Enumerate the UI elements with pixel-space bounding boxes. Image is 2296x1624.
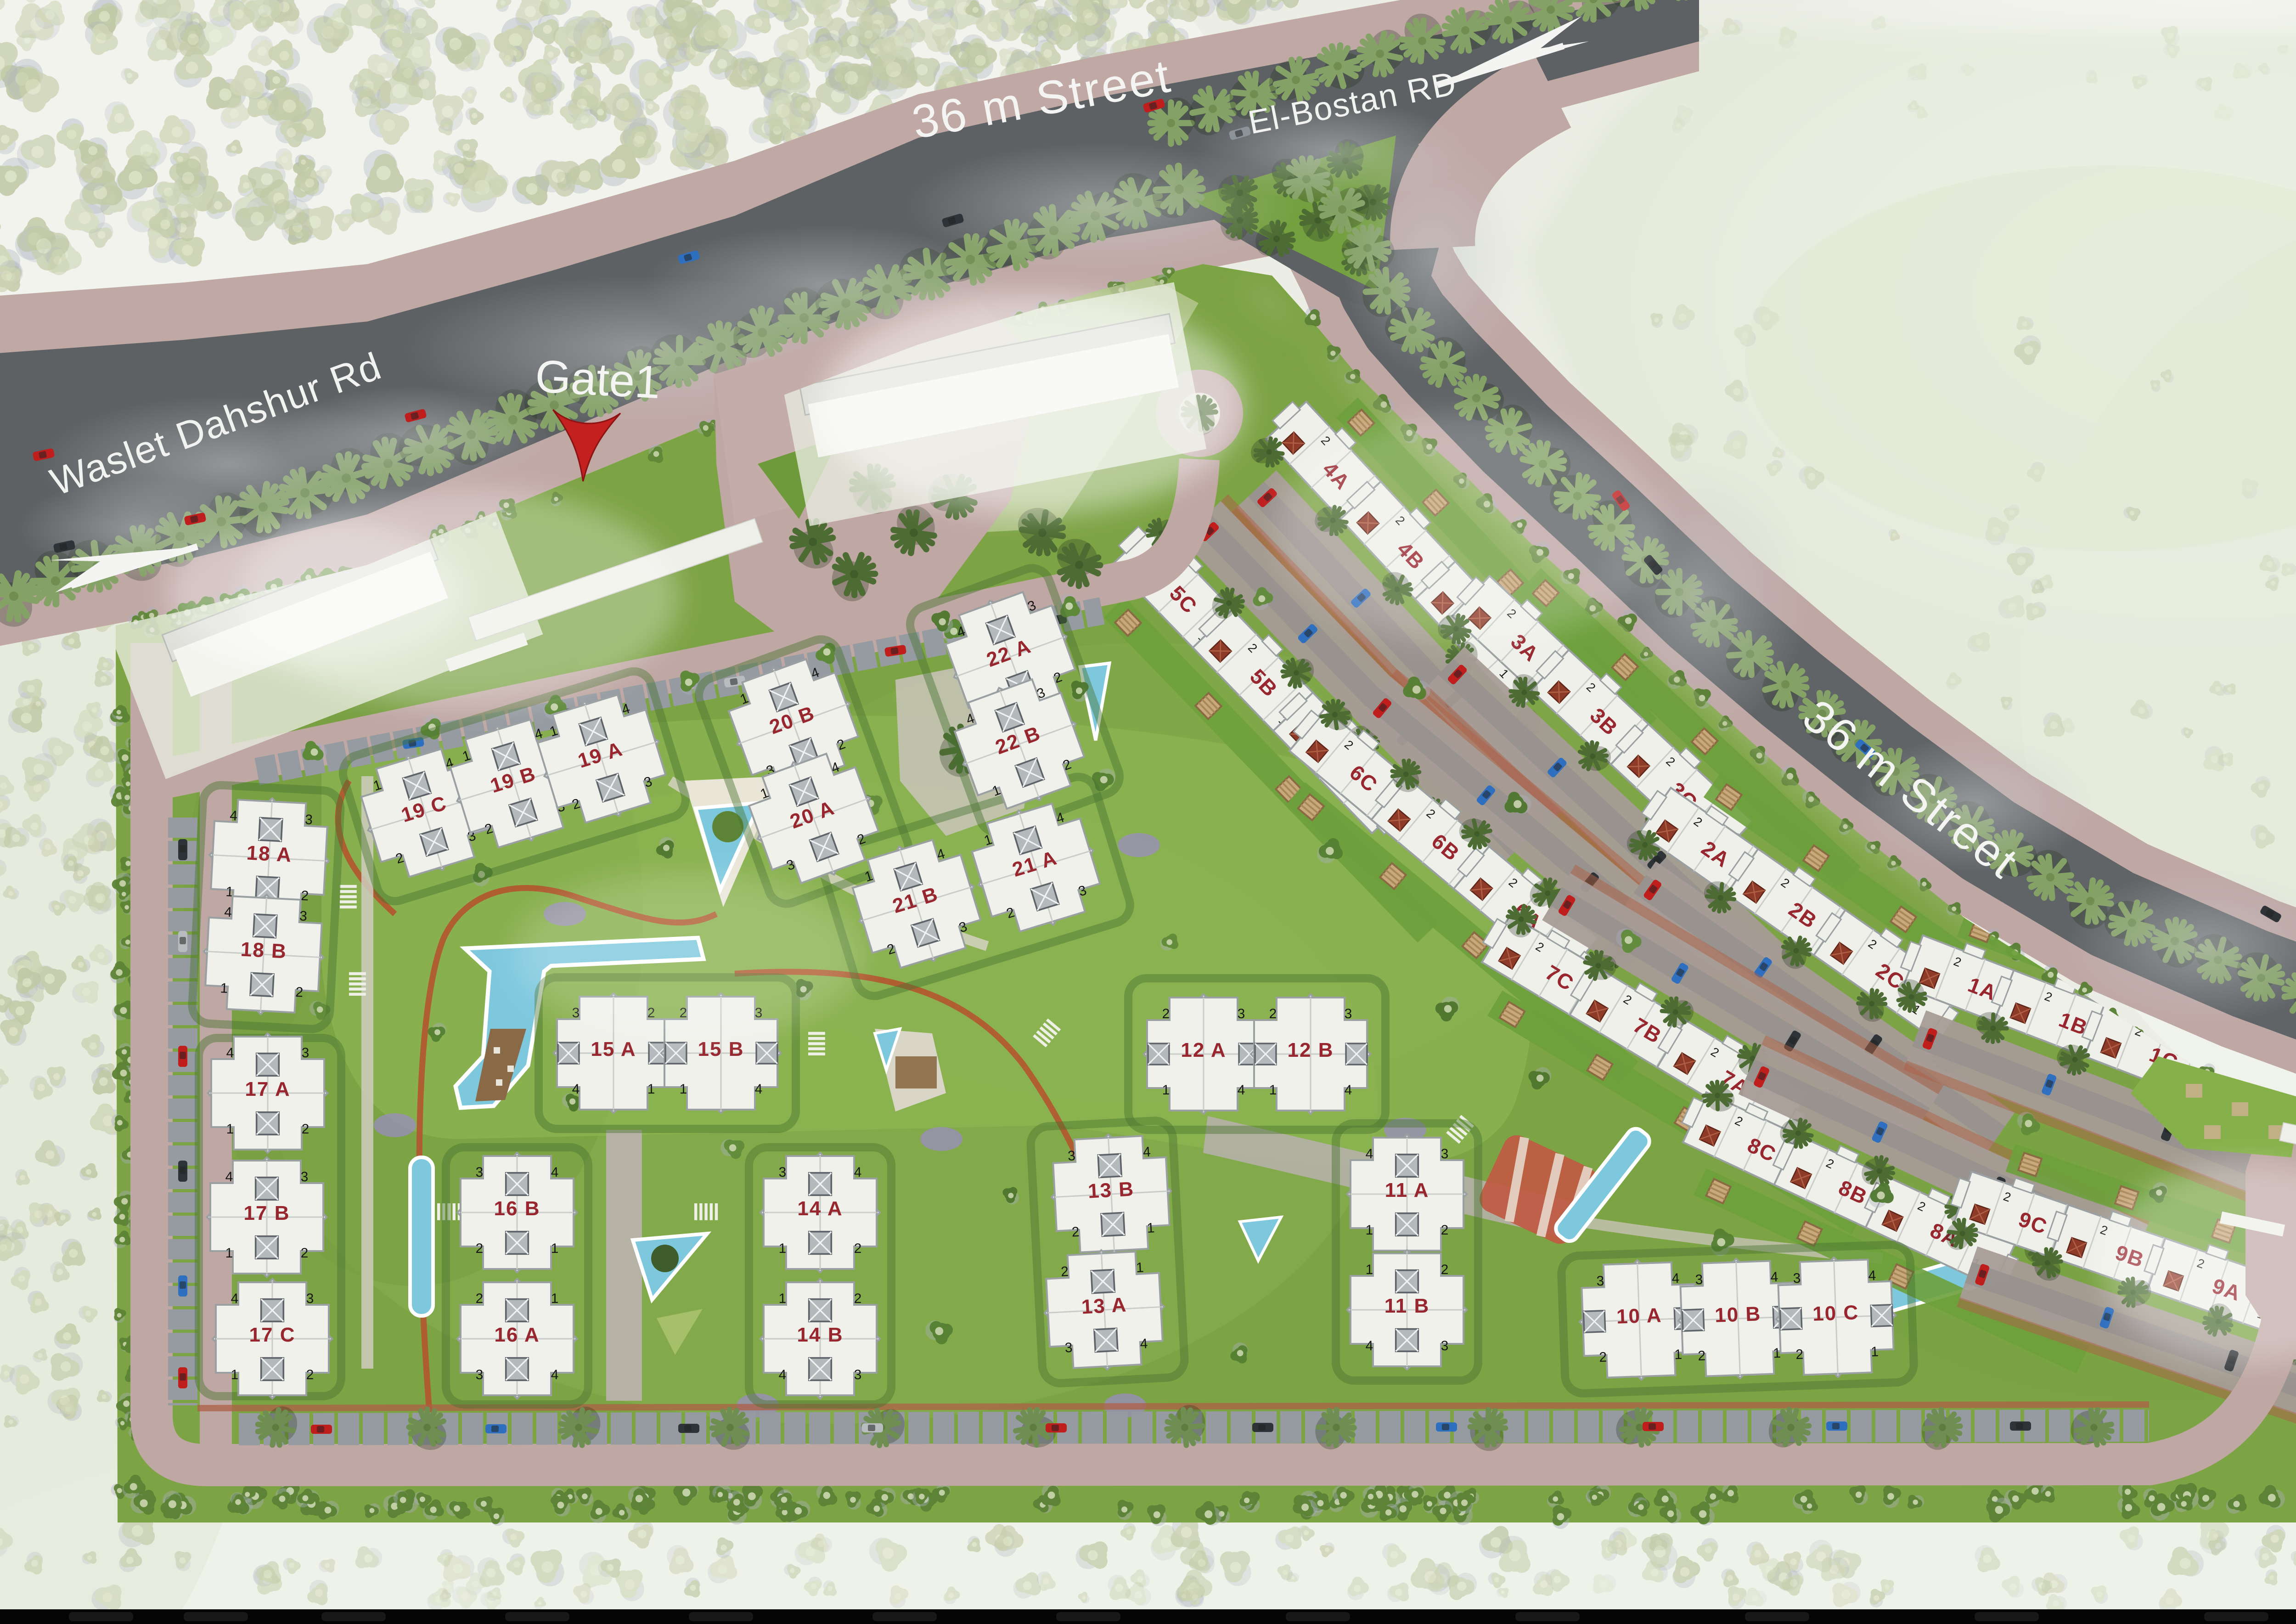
svg-text:15 B: 15 B <box>698 1038 744 1060</box>
svg-text:1: 1 <box>680 1082 687 1097</box>
svg-text:1: 1 <box>779 1291 787 1306</box>
svg-text:4: 4 <box>226 1045 234 1060</box>
svg-text:1: 1 <box>226 1122 234 1137</box>
svg-text:2: 2 <box>1599 1350 1607 1365</box>
svg-text:16 A: 16 A <box>494 1324 540 1346</box>
svg-text:18 B: 18 B <box>240 938 287 963</box>
svg-text:2: 2 <box>302 1122 310 1137</box>
svg-text:1: 1 <box>1366 1223 1373 1238</box>
svg-text:2: 2 <box>306 1367 314 1382</box>
svg-text:11 B: 11 B <box>1384 1295 1430 1317</box>
svg-text:1: 1 <box>1136 1260 1144 1275</box>
svg-text:3: 3 <box>301 1169 309 1184</box>
svg-text:2: 2 <box>854 1291 862 1306</box>
svg-text:2: 2 <box>1060 1264 1069 1280</box>
svg-text:4: 4 <box>231 1291 239 1306</box>
svg-text:4: 4 <box>572 1082 580 1097</box>
svg-text:3: 3 <box>779 1165 787 1180</box>
svg-text:1: 1 <box>1674 1347 1683 1363</box>
svg-text:4: 4 <box>1366 1338 1373 1353</box>
svg-text:2: 2 <box>1441 1262 1449 1277</box>
svg-text:2: 2 <box>476 1241 484 1256</box>
svg-text:12 B: 12 B <box>1288 1039 1334 1061</box>
svg-text:1: 1 <box>220 981 228 996</box>
svg-text:18 A: 18 A <box>246 841 293 866</box>
svg-text:3: 3 <box>854 1367 862 1382</box>
svg-text:2: 2 <box>295 985 304 1000</box>
svg-text:1: 1 <box>225 1246 233 1261</box>
svg-text:2: 2 <box>1269 1006 1277 1021</box>
svg-text:1: 1 <box>1162 1083 1170 1098</box>
svg-text:14 A: 14 A <box>797 1197 843 1220</box>
svg-text:3: 3 <box>306 1291 314 1306</box>
svg-text:4: 4 <box>229 808 237 823</box>
svg-text:10 C: 10 C <box>1812 1301 1859 1325</box>
svg-text:4: 4 <box>1671 1271 1680 1286</box>
svg-text:1: 1 <box>231 1367 239 1382</box>
svg-text:3: 3 <box>1793 1271 1801 1286</box>
svg-text:15 A: 15 A <box>591 1038 636 1060</box>
svg-text:3: 3 <box>304 812 313 828</box>
svg-text:4: 4 <box>1366 1146 1373 1162</box>
svg-text:12 A: 12 A <box>1181 1039 1226 1061</box>
svg-text:17 B: 17 B <box>244 1202 290 1224</box>
svg-text:1: 1 <box>1871 1344 1879 1360</box>
svg-text:3: 3 <box>1441 1146 1449 1162</box>
svg-text:17 A: 17 A <box>245 1078 290 1100</box>
svg-text:4: 4 <box>854 1165 862 1180</box>
svg-text:2: 2 <box>301 1246 309 1261</box>
svg-text:4: 4 <box>551 1165 559 1180</box>
svg-text:4: 4 <box>1868 1268 1876 1284</box>
svg-text:13 A: 13 A <box>1081 1293 1128 1318</box>
svg-text:1: 1 <box>1269 1083 1277 1098</box>
svg-text:11 A: 11 A <box>1385 1179 1429 1201</box>
svg-text:1: 1 <box>551 1291 559 1306</box>
svg-text:10 A: 10 A <box>1616 1304 1662 1328</box>
svg-text:2: 2 <box>476 1291 484 1306</box>
svg-text:1: 1 <box>779 1241 787 1256</box>
svg-text:3: 3 <box>1695 1272 1703 1288</box>
svg-text:3: 3 <box>1064 1340 1073 1356</box>
svg-text:2: 2 <box>1162 1006 1170 1021</box>
svg-text:4: 4 <box>1345 1083 1352 1098</box>
svg-text:2: 2 <box>1795 1347 1804 1363</box>
svg-text:1: 1 <box>647 1082 655 1097</box>
svg-text:10 B: 10 B <box>1714 1303 1761 1326</box>
svg-text:3: 3 <box>1345 1006 1352 1021</box>
svg-text:3: 3 <box>1596 1274 1604 1289</box>
svg-text:3: 3 <box>302 1045 310 1060</box>
svg-text:3: 3 <box>1238 1006 1245 1021</box>
svg-text:4: 4 <box>1238 1083 1245 1098</box>
svg-text:2: 2 <box>301 888 309 904</box>
svg-text:17 C: 17 C <box>249 1324 296 1346</box>
svg-text:3: 3 <box>476 1367 484 1382</box>
svg-text:Gate1: Gate1 <box>534 350 662 408</box>
svg-text:4: 4 <box>779 1367 787 1382</box>
svg-text:13 B: 13 B <box>1087 1178 1135 1202</box>
svg-text:3: 3 <box>1441 1338 1449 1353</box>
svg-text:4: 4 <box>1770 1269 1778 1285</box>
svg-text:4: 4 <box>755 1082 763 1097</box>
svg-text:2: 2 <box>1441 1223 1449 1238</box>
svg-text:1: 1 <box>551 1241 559 1256</box>
svg-text:16 B: 16 B <box>494 1197 540 1220</box>
svg-text:4: 4 <box>1140 1336 1148 1352</box>
svg-text:3: 3 <box>476 1165 484 1180</box>
svg-text:4: 4 <box>551 1367 559 1382</box>
svg-text:2: 2 <box>1698 1348 1706 1364</box>
svg-text:1: 1 <box>1366 1262 1373 1277</box>
svg-text:1: 1 <box>1147 1220 1155 1236</box>
svg-text:4: 4 <box>225 1169 233 1184</box>
svg-text:4: 4 <box>224 904 232 920</box>
svg-text:3: 3 <box>1067 1148 1075 1164</box>
svg-text:14 B: 14 B <box>797 1324 844 1346</box>
svg-text:3: 3 <box>299 908 307 924</box>
svg-text:4: 4 <box>1142 1144 1151 1160</box>
svg-text:2: 2 <box>1071 1224 1080 1240</box>
svg-text:2: 2 <box>854 1241 862 1256</box>
